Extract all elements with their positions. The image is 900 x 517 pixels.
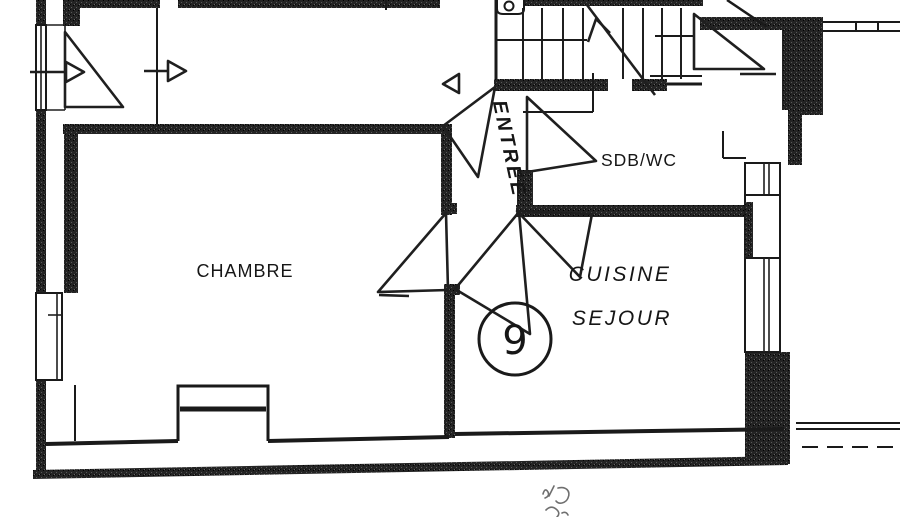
room-label-sejour: SEJOUR xyxy=(572,307,672,330)
wall-stair-south xyxy=(494,79,667,91)
east-wall-pier-fill xyxy=(745,202,753,258)
inner-south-wall xyxy=(455,429,784,434)
room-label-entree: ENTREE xyxy=(488,98,530,200)
wall-segment xyxy=(36,0,46,26)
window-east-lower xyxy=(745,258,780,352)
chambre-door-swing-triangle xyxy=(378,213,448,292)
floor-plan: CHAMBRE SDB/WC CUISINE SEJOUR ENTREE 9 xyxy=(0,0,900,517)
bay-door-swing-triangle xyxy=(65,32,123,107)
wall-top-right-step xyxy=(788,110,802,165)
wall-segment xyxy=(75,0,160,8)
stairs-up-arrowhead-icon xyxy=(588,19,610,42)
door-jamb xyxy=(441,203,457,214)
wall-south-exterior xyxy=(33,456,788,479)
stair-newel-post xyxy=(505,2,514,11)
wall-segment xyxy=(36,110,46,293)
room-label-chambre: CHAMBRE xyxy=(196,261,293,281)
room-labels: CHAMBRE SDB/WC CUISINE SEJOUR ENTREE 9 xyxy=(196,98,677,375)
interior-lines xyxy=(46,0,784,444)
scanned-floor-plan-page: CHAMBRE SDB/WC CUISINE SEJOUR ENTREE 9 xyxy=(0,0,900,517)
inner-south-wall xyxy=(46,441,178,444)
entree-arrow-icon xyxy=(443,74,459,93)
margin-scribble xyxy=(543,486,569,517)
adjacent-structure xyxy=(796,423,900,447)
stair-treads xyxy=(523,8,681,79)
sdb-door-swing-triangle xyxy=(527,97,596,172)
chimney-breast xyxy=(178,386,268,441)
wall-segment xyxy=(64,133,78,293)
wall-chambre-north xyxy=(63,124,443,134)
wall-stair-north xyxy=(523,0,703,6)
unit-number-text: 9 xyxy=(502,318,527,364)
window-opening-arrow-icon xyxy=(66,62,84,82)
room-label-cuisine: CUISINE xyxy=(569,263,672,286)
cuisine-door-swing-triangle xyxy=(455,212,530,334)
window-opening-arrow-icon xyxy=(168,61,186,81)
inner-south-wall xyxy=(268,437,449,441)
room-label-sdb-wc: SDB/WC xyxy=(601,150,677,170)
wall-segment xyxy=(178,0,440,8)
chambre-door-tick xyxy=(379,295,409,296)
stair-door-opening xyxy=(608,79,632,91)
windows xyxy=(36,22,900,380)
window-west-lower xyxy=(36,293,62,380)
wall-chambre-east-lower xyxy=(444,288,455,438)
wall-top-right xyxy=(782,17,823,110)
wall-segment xyxy=(36,380,46,472)
wall-sdb-south xyxy=(516,205,747,217)
wall-east-lower xyxy=(745,352,790,464)
window-east-upper xyxy=(745,163,780,195)
